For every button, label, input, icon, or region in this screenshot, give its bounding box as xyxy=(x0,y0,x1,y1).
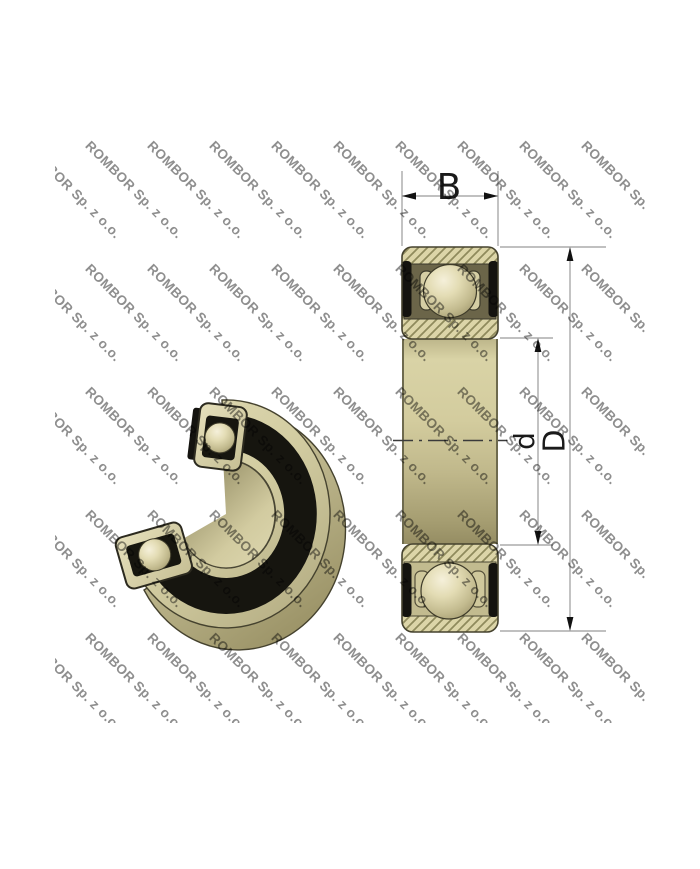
bearing-product-image: B D d ROMBOR Sp. z o.o.ROMBOR Sp. z o.o.… xyxy=(0,0,700,869)
dimension-width-B: B xyxy=(402,167,498,246)
bearing-technical-drawing: B D d xyxy=(0,0,700,869)
bearing-3d-view xyxy=(76,364,346,650)
ring-section-top xyxy=(402,247,499,339)
ring-section-bottom xyxy=(402,544,499,632)
bore-cylinder xyxy=(393,339,507,544)
seal-bottom-right xyxy=(489,563,499,617)
seal-bottom-left xyxy=(402,563,412,617)
cut-face-top xyxy=(186,401,247,471)
label-D: D xyxy=(538,429,573,452)
label-d: d xyxy=(508,432,541,450)
label-B: B xyxy=(437,167,462,208)
bearing-cross-section xyxy=(393,247,507,632)
ball-section-bottom xyxy=(421,563,477,619)
ball-section-top xyxy=(424,265,477,318)
seal-top-left xyxy=(402,261,412,317)
seal-top-right xyxy=(489,261,499,317)
